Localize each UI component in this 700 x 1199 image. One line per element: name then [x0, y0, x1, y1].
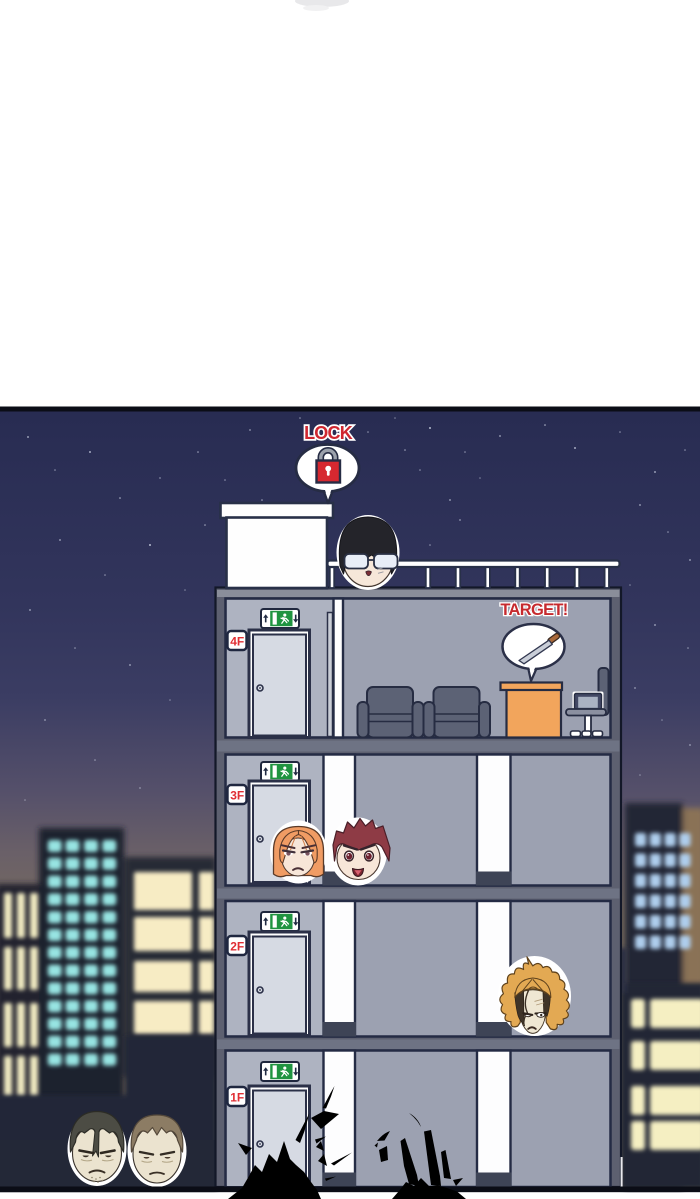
svg-text:TARGET!: TARGET! [500, 601, 567, 619]
svg-text:3F: 3F [230, 789, 244, 803]
svg-text:2F: 2F [230, 940, 244, 954]
svg-text:4F: 4F [230, 635, 244, 649]
svg-text:1F: 1F [230, 1091, 244, 1105]
svg-text:LOCK: LOCK [304, 423, 353, 443]
